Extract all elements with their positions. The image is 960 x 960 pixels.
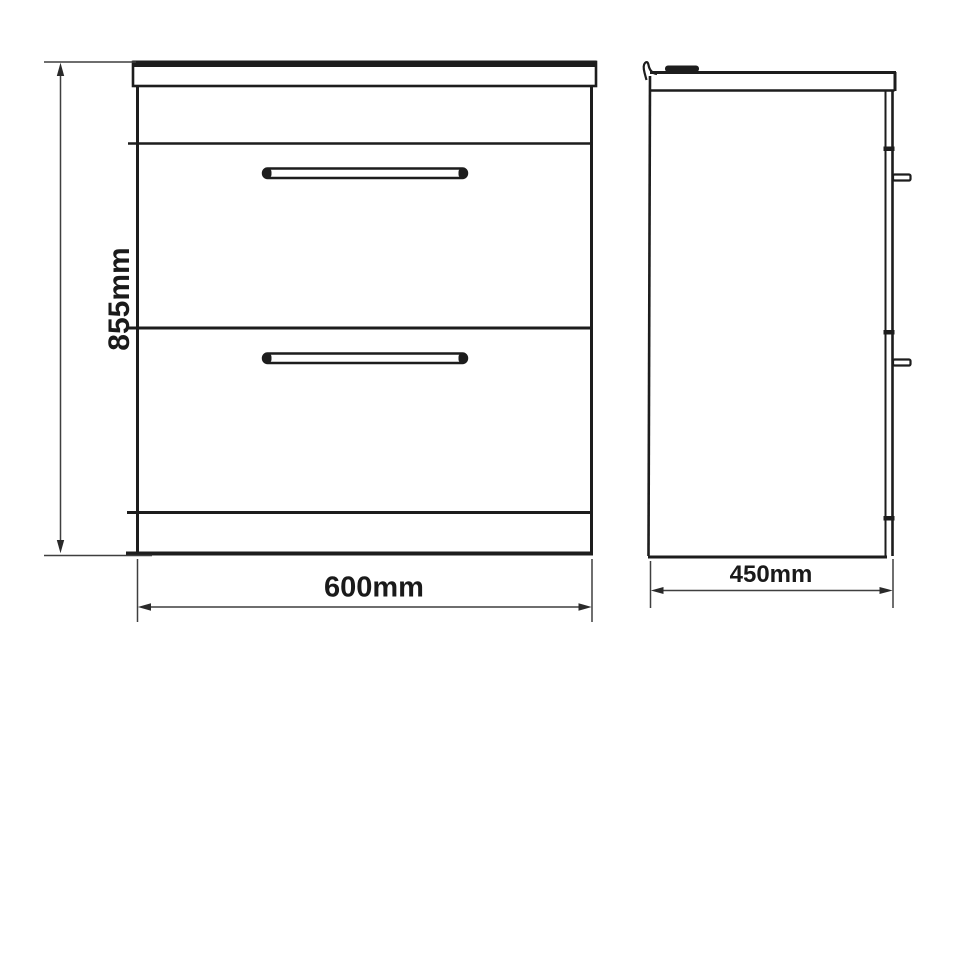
cabinet-outline-side (648, 76, 887, 557)
drawer-front-strip-side (884, 91, 895, 556)
drawer-2-handle (263, 353, 468, 364)
drawer-2-handle-side (893, 360, 911, 366)
depth-dimension-label: 450mm (730, 561, 813, 589)
countertop-edge-detail (665, 66, 699, 73)
vanity-unit-drawing (0, 0, 960, 960)
height-dimension-label: 855mm (103, 247, 137, 350)
drawer-divider-tick-bottom (884, 516, 895, 521)
dimension-arrowhead-left-icon (138, 603, 151, 610)
countertop-side (644, 62, 896, 91)
dimension-arrowhead-right-icon (579, 603, 592, 610)
drawer-1-handle-side (893, 175, 911, 181)
dimension-arrowhead-left-icon (651, 587, 664, 594)
side-view (644, 62, 911, 557)
dimension-arrowhead-down-icon (57, 540, 64, 553)
dimension-arrowhead-up-icon (57, 63, 64, 76)
cabinet-outline-front (138, 86, 592, 553)
drawer-divider-tick-top (884, 147, 895, 152)
drawer-divider-tick-middle (884, 330, 895, 335)
front-view (126, 61, 597, 554)
countertop-front (133, 61, 597, 87)
dimension-arrowhead-right-icon (880, 587, 893, 594)
technical-drawing-page: 855mm 600mm 450mm (0, 0, 960, 960)
drawer-1-handle (263, 168, 468, 179)
width-dimension-label: 600mm (324, 572, 424, 605)
